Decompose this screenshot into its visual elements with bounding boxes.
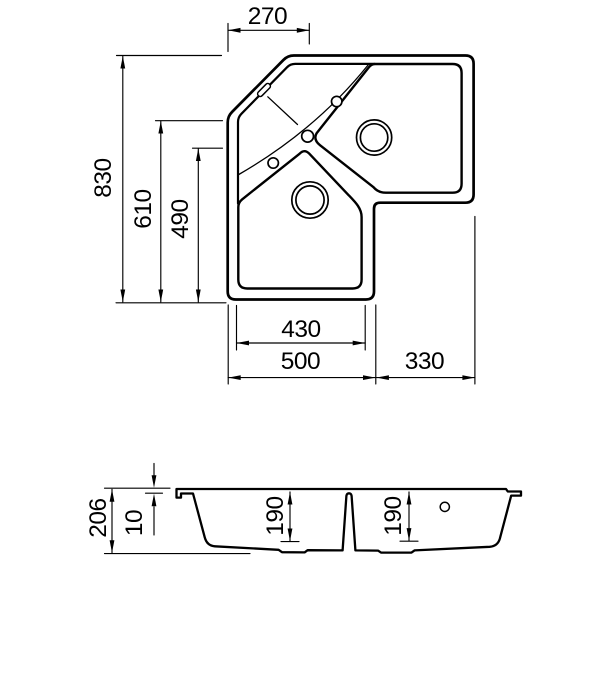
tap-hole-center	[302, 130, 314, 142]
bottom-bowl-drain	[292, 182, 328, 218]
tap-hole-upper	[332, 96, 342, 106]
dim-label-206: 206	[87, 498, 112, 537]
dim-label-430: 430	[281, 317, 320, 342]
dim-label-830: 830	[91, 158, 116, 197]
dim-label-500: 500	[281, 349, 320, 374]
dim-830	[117, 56, 222, 303]
dim-label-330: 330	[405, 349, 444, 374]
drainer-groove-spur	[268, 97, 298, 125]
dim-label-190-left: 190	[264, 496, 289, 535]
section-profile	[177, 489, 522, 553]
technical-drawing-page: 270 830 610 490 430 500 330 206 10 190 1…	[0, 0, 600, 689]
dim-label-270: 270	[248, 4, 287, 29]
bottom-bowl	[238, 151, 361, 288]
dim-label-490: 490	[168, 199, 193, 238]
overflow-hole	[440, 502, 449, 511]
section-view	[105, 464, 522, 554]
dim-label-10: 10	[123, 509, 148, 535]
dim-490	[193, 148, 223, 302]
right-bowl-drain	[357, 120, 392, 155]
dim-label-190-right: 190	[382, 496, 407, 535]
technical-drawing-svg	[0, 0, 600, 689]
drainer-groove	[239, 65, 369, 175]
dim-10	[146, 464, 163, 536]
tap-hole-lower	[268, 158, 278, 168]
dim-label-610: 610	[131, 189, 156, 228]
